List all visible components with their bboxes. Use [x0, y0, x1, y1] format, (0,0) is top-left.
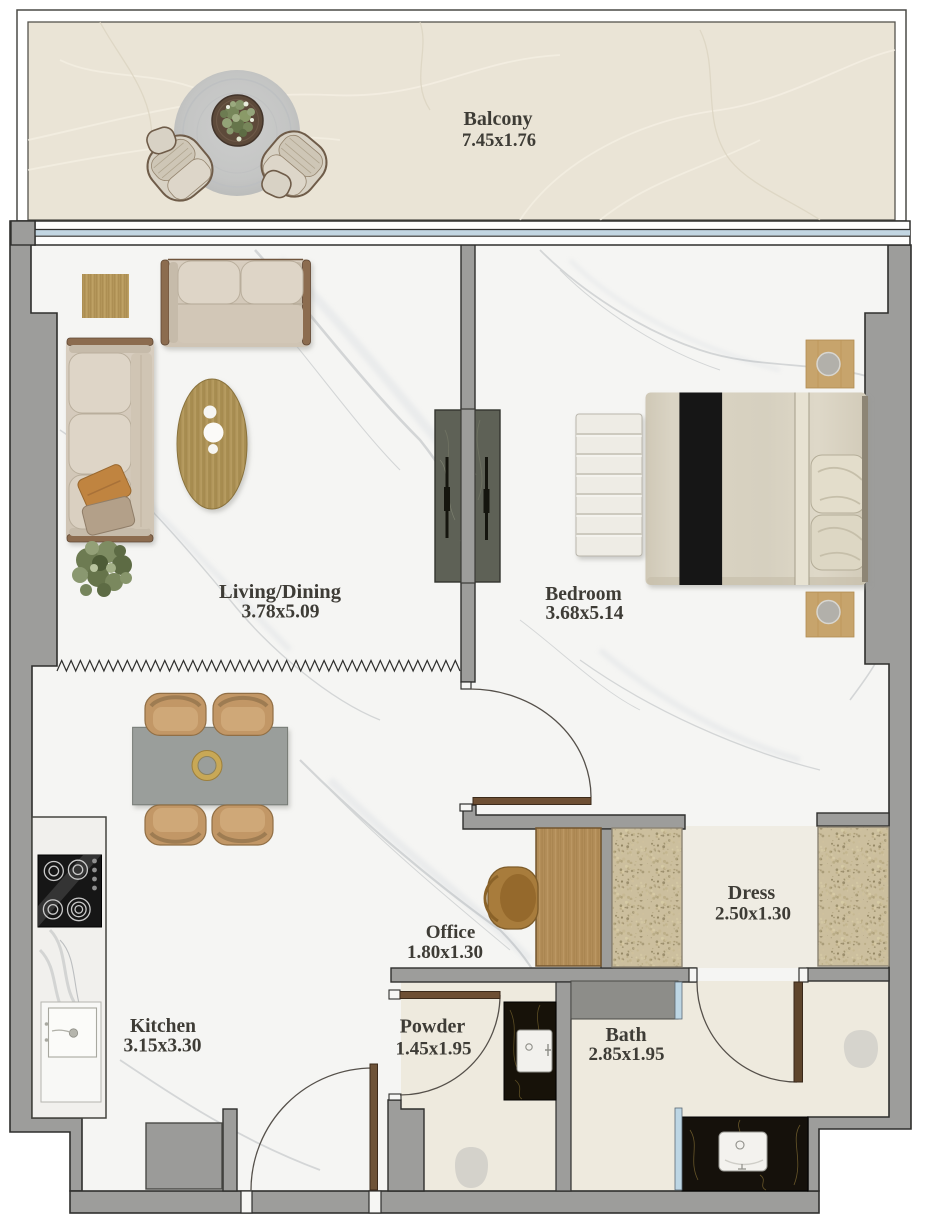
svg-text:3.68x5.14: 3.68x5.14 [546, 603, 624, 624]
svg-text:Balcony: Balcony [464, 108, 533, 130]
svg-text:3.78x5.09: 3.78x5.09 [242, 602, 320, 623]
svg-text:1.80x1.30: 1.80x1.30 [407, 942, 483, 963]
svg-text:Kitchen: Kitchen [130, 1016, 196, 1037]
svg-text:2.50x1.30: 2.50x1.30 [715, 904, 791, 925]
svg-text:3.15x3.30: 3.15x3.30 [124, 1036, 202, 1057]
svg-text:7.45x1.76: 7.45x1.76 [462, 131, 536, 151]
svg-text:Living/Dining: Living/Dining [219, 581, 342, 603]
svg-text:Bedroom: Bedroom [545, 584, 622, 605]
svg-text:Dress: Dress [728, 882, 776, 904]
svg-text:2.85x1.95: 2.85x1.95 [589, 1044, 665, 1065]
svg-text:1.45x1.95: 1.45x1.95 [396, 1039, 472, 1060]
svg-text:Office: Office [426, 922, 476, 943]
svg-text:Powder: Powder [400, 1016, 466, 1038]
svg-text:Bath: Bath [605, 1024, 646, 1046]
